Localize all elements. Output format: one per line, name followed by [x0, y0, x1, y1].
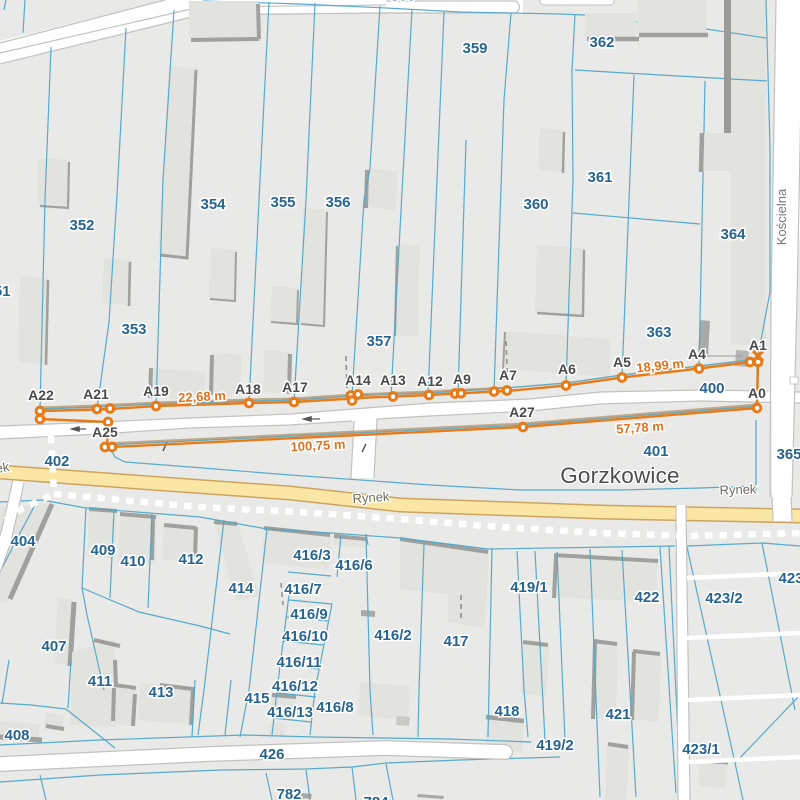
svg-text:422: 422 [634, 589, 659, 606]
svg-text:Rynek: Rynek [352, 489, 390, 507]
svg-text:100,75 m: 100,75 m [290, 437, 346, 455]
svg-text:402: 402 [44, 453, 69, 470]
svg-text:A7: A7 [499, 367, 517, 383]
svg-text:353: 353 [121, 321, 146, 338]
svg-text:423/2: 423/2 [705, 590, 743, 607]
svg-text:416/9: 416/9 [290, 606, 328, 623]
svg-text:356: 356 [325, 194, 350, 211]
svg-text:421: 421 [605, 706, 630, 723]
svg-text:361: 361 [587, 169, 612, 186]
svg-text:407: 407 [41, 638, 66, 655]
svg-text:416/8: 416/8 [316, 699, 354, 716]
svg-text:782: 782 [276, 786, 301, 800]
svg-text:416/3: 416/3 [293, 547, 331, 564]
svg-text:A9: A9 [453, 371, 471, 387]
svg-text:A14: A14 [345, 372, 371, 388]
svg-text:A25: A25 [92, 424, 118, 440]
svg-text:Gorzkowice: Gorzkowice [560, 463, 680, 488]
svg-text:351: 351 [0, 283, 11, 300]
svg-text:A27: A27 [509, 404, 535, 420]
svg-text:A1: A1 [749, 337, 767, 353]
svg-text:414: 414 [228, 580, 254, 597]
svg-text:Kościelna: Kościelna [774, 188, 789, 245]
svg-text:Rynek: Rynek [719, 481, 757, 497]
svg-text:365: 365 [776, 446, 800, 463]
svg-text:360: 360 [523, 196, 548, 213]
svg-text:359: 359 [462, 40, 487, 57]
svg-text:412: 412 [178, 551, 203, 568]
svg-text:355: 355 [270, 194, 295, 211]
svg-text:401: 401 [643, 443, 668, 460]
svg-text:A4: A4 [688, 346, 706, 362]
svg-text:A21: A21 [83, 386, 109, 402]
svg-text:404: 404 [10, 533, 36, 550]
svg-text:416/13: 416/13 [267, 704, 313, 721]
svg-text:A6: A6 [558, 361, 576, 377]
svg-text:419/1: 419/1 [510, 579, 548, 596]
svg-text:363: 363 [646, 324, 671, 341]
svg-text:364: 364 [720, 226, 746, 243]
svg-text:416/10: 416/10 [282, 628, 328, 645]
svg-text:416/12: 416/12 [272, 678, 318, 695]
svg-text:A5: A5 [613, 354, 631, 370]
svg-text:A17: A17 [282, 379, 308, 395]
svg-text:410: 410 [120, 553, 145, 570]
svg-text:413: 413 [148, 684, 173, 701]
svg-text:362: 362 [589, 34, 614, 51]
svg-text:416/2: 416/2 [374, 627, 412, 644]
svg-text:416/7: 416/7 [284, 581, 322, 598]
svg-text:358: 358 [390, 0, 415, 5]
svg-text:A18: A18 [235, 381, 261, 397]
svg-text:400: 400 [699, 380, 724, 397]
svg-text:415: 415 [244, 690, 269, 707]
svg-text:408: 408 [4, 727, 29, 744]
svg-text:409: 409 [90, 542, 115, 559]
svg-text:A12: A12 [417, 373, 443, 389]
svg-text:423: 423 [778, 570, 800, 587]
svg-text:426: 426 [259, 746, 284, 763]
svg-text:416/6: 416/6 [335, 557, 373, 574]
svg-text:416/11: 416/11 [276, 654, 321, 671]
svg-text:411: 411 [88, 673, 112, 690]
svg-text:354: 354 [200, 196, 226, 213]
svg-text:417: 417 [443, 633, 468, 650]
svg-text:A13: A13 [380, 372, 406, 388]
svg-text:352: 352 [69, 217, 94, 234]
svg-text:419/2: 419/2 [536, 737, 574, 754]
svg-text:418: 418 [494, 703, 519, 720]
svg-text:357: 357 [366, 333, 391, 350]
svg-text:22,68 m: 22,68 m [178, 388, 226, 405]
svg-text:423/1: 423/1 [682, 741, 720, 758]
svg-text:A0: A0 [748, 385, 766, 401]
svg-text:A19: A19 [143, 383, 169, 399]
svg-text:A22: A22 [28, 387, 54, 403]
svg-text:784: 784 [363, 794, 389, 800]
